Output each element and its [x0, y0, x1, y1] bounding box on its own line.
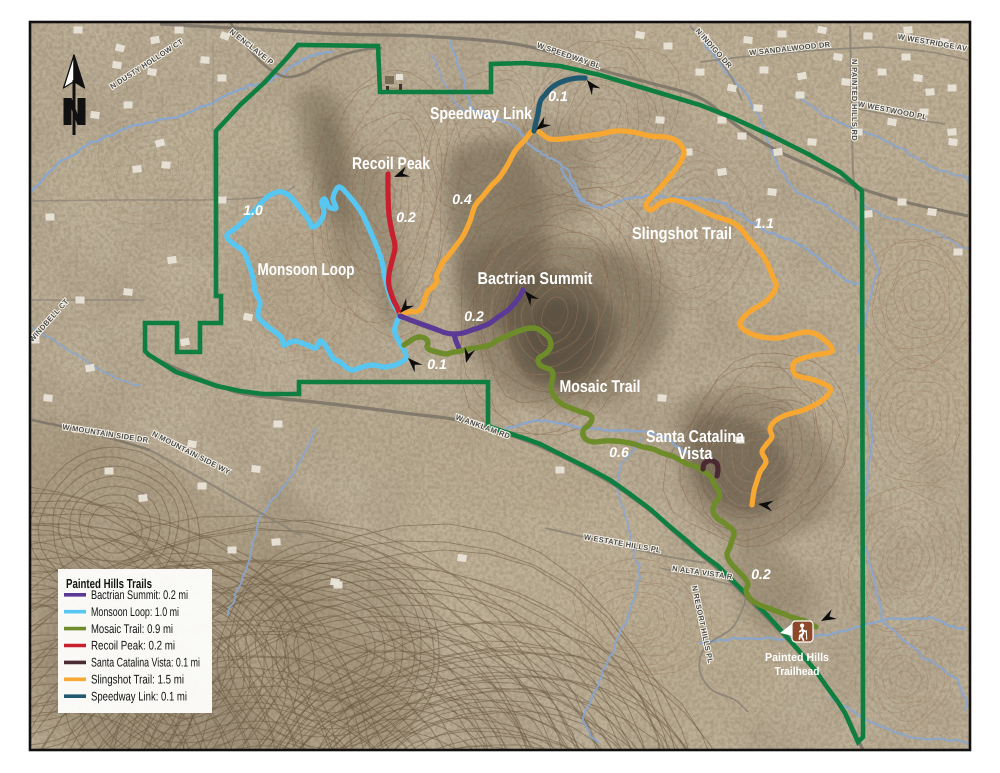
svg-text:Monsoon Loop: Monsoon Loop	[258, 260, 355, 279]
svg-text:Speedway Link: Speedway Link	[430, 104, 532, 123]
svg-text:Bactrian Summit: Bactrian Summit	[478, 269, 593, 288]
svg-text:0.2: 0.2	[751, 566, 771, 582]
svg-text:0.1: 0.1	[548, 88, 568, 104]
svg-text:0.4: 0.4	[452, 191, 472, 207]
svg-text:0.6: 0.6	[609, 444, 629, 460]
svg-text:1.1: 1.1	[754, 215, 774, 231]
svg-text:Recoil Peak: Recoil Peak	[352, 154, 430, 173]
svg-text:Slingshot Trail: 1.5 mi: Slingshot Trail: 1.5 mi	[91, 673, 184, 687]
svg-text:Santa Catalina Vista: 0.1 mi: Santa Catalina Vista: 0.1 mi	[91, 656, 200, 670]
svg-text:Vista: Vista	[678, 444, 713, 463]
svg-text:0.2: 0.2	[464, 308, 484, 324]
svg-text:Mosaic Trail: Mosaic Trail	[560, 377, 641, 396]
svg-text:Speedway Link: 0.1 mi: Speedway Link: 0.1 mi	[91, 689, 187, 703]
svg-text:Bactrian Summit: 0.2 mi: Bactrian Summit: 0.2 mi	[91, 588, 188, 602]
svg-text:Slingshot Trail: Slingshot Trail	[632, 224, 732, 243]
svg-text:Recoil Peak: 0.2 mi: Recoil Peak: 0.2 mi	[91, 639, 175, 653]
svg-text:Mosaic Trail: 0.9 mi: Mosaic Trail: 0.9 mi	[91, 622, 173, 636]
svg-text:0.2: 0.2	[396, 209, 416, 225]
svg-text:Trailhead: Trailhead	[775, 666, 820, 678]
svg-text:Monsoon Loop: 1.0 mi: Monsoon Loop: 1.0 mi	[91, 605, 179, 619]
svg-text:1.0: 1.0	[243, 202, 263, 218]
svg-text:Painted Hills: Painted Hills	[765, 652, 829, 664]
svg-text:0.1: 0.1	[427, 356, 447, 372]
